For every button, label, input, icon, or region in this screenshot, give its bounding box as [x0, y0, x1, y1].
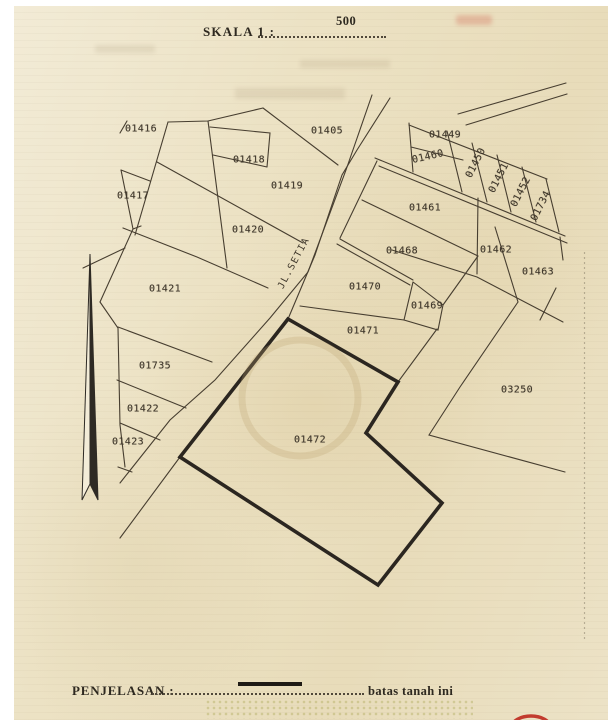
parcel-label-01460: 01460	[411, 148, 445, 166]
parcel-label-01450: 01450	[464, 146, 488, 180]
legend-note: batas tanah ini	[368, 684, 453, 699]
legend-boundary-sample-line	[238, 682, 302, 686]
parcel-label-01468: 01468	[386, 246, 418, 257]
parcel-label-01463: 01463	[522, 267, 554, 278]
parcel-label-01735: 01735	[139, 361, 171, 372]
parcel-label-01449: 01449	[429, 130, 461, 141]
scanned-survey-map: SKALA 1 : 500	[0, 0, 608, 720]
parcel-label-01470: 01470	[349, 282, 381, 293]
parcel-label-01472: 01472	[294, 435, 326, 446]
parcel-label-01416: 01416	[125, 124, 157, 135]
parcel-labels-layer: 0141601417014180141901420014050144901460…	[0, 0, 608, 720]
parcel-label-01422: 01422	[127, 404, 159, 415]
parcel-label-01418: 01418	[233, 155, 265, 166]
parcel-label-01423: 01423	[112, 437, 144, 448]
parcel-label-01469: 01469	[411, 301, 443, 312]
parcel-label-01419: 01419	[271, 181, 303, 192]
parcel-label-01734: 01734	[529, 189, 553, 223]
parcel-label-01417: 01417	[117, 191, 149, 202]
parcel-label-01421: 01421	[149, 284, 181, 295]
parcel-label-01471: 01471	[347, 326, 379, 337]
parcel-label-01451: 01451	[487, 161, 511, 195]
parcel-label-01420: 01420	[232, 225, 264, 236]
parcel-label-01452: 01452	[509, 175, 533, 209]
parcel-label-01461: 01461	[409, 203, 441, 214]
dot-matrix-print-artifact	[205, 699, 473, 719]
parcel-label-03250: 03250	[501, 385, 533, 396]
parcel-label-01405: 01405	[311, 126, 343, 137]
parcel-label-01462: 01462	[480, 245, 512, 256]
